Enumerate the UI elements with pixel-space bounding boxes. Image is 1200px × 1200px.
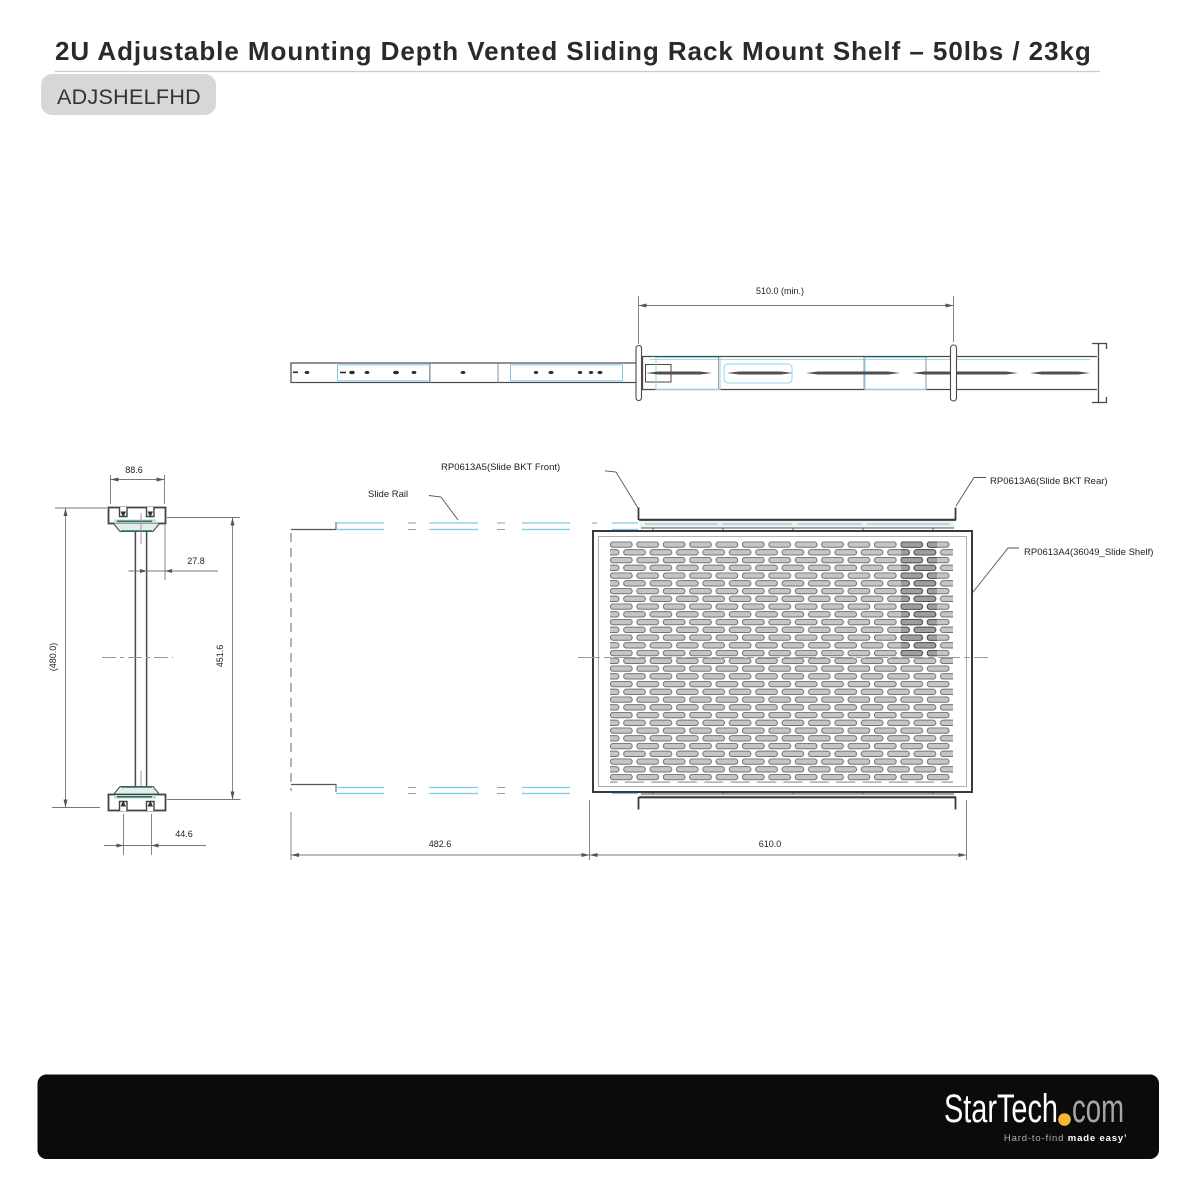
svg-text:com: com: [1072, 1087, 1124, 1131]
svg-text:482.6: 482.6: [429, 839, 452, 849]
svg-text:(480.0): (480.0): [48, 643, 58, 672]
svg-text:RP0613A6(Slide BKT Rear): RP0613A6(Slide BKT Rear): [990, 476, 1108, 487]
svg-text:RP0613A5(Slide BKT Front): RP0613A5(Slide BKT Front): [441, 462, 560, 473]
svg-text:StarTech: StarTech: [944, 1087, 1058, 1131]
svg-text:27.8: 27.8: [187, 556, 205, 566]
svg-text:88.6: 88.6: [125, 465, 143, 475]
svg-text:Slide Rail: Slide Rail: [368, 489, 408, 500]
svg-text:510.0 (min.): 510.0 (min.): [756, 286, 804, 296]
svg-text:ADJSHELFHD: ADJSHELFHD: [57, 85, 201, 109]
svg-text:2U Adjustable Mounting Depth V: 2U Adjustable Mounting Depth Vented Slid…: [55, 36, 1092, 66]
svg-text:Hard-to-find made easy’: Hard-to-find made easy’: [1004, 1133, 1128, 1144]
svg-text:451.6: 451.6: [215, 645, 225, 668]
svg-text:RP0613A4(36049_Slide Shelf): RP0613A4(36049_Slide Shelf): [1024, 547, 1153, 558]
svg-text:610.0: 610.0: [759, 839, 782, 849]
svg-text:44.6: 44.6: [175, 829, 193, 839]
